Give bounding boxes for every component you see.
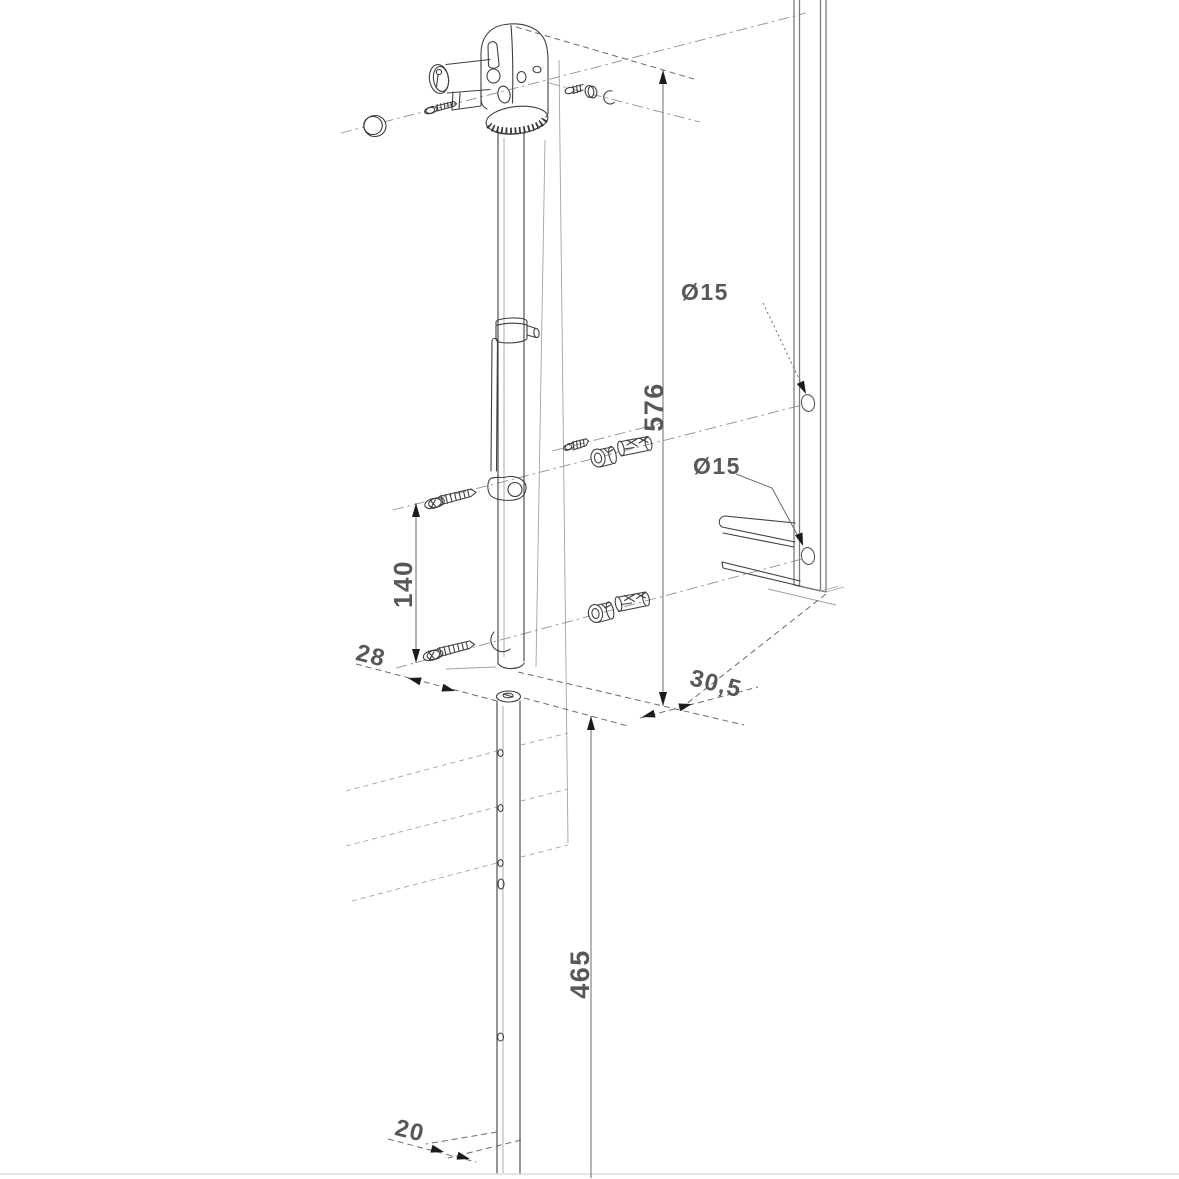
dim-28-label: 28 — [353, 639, 388, 672]
dim-576-label: 576 — [639, 382, 669, 432]
wall-anchor-set-upper — [589, 436, 653, 468]
dim-dia15-upper-label: Ø15 — [681, 279, 729, 305]
bolt-rod — [488, 131, 540, 669]
head-side-screw-set — [564, 85, 614, 104]
post-hole-lower — [800, 547, 816, 566]
mounting-screw-lower — [422, 641, 474, 662]
euro-keyway-slot — [488, 42, 499, 69]
dim-dia15-lower-label: Ø15 — [693, 453, 741, 479]
post-hole-upper — [800, 394, 816, 413]
guide-tube — [497, 691, 521, 1173]
mounting-screw-upper — [424, 489, 476, 510]
dim-140-label: 140 — [388, 560, 418, 608]
technical-drawing-page: 576 465 140 28 30,5 20 Ø15 — [0, 0, 1179, 1179]
lock-head — [481, 24, 549, 137]
keeper-bracket — [719, 516, 836, 605]
dim-465-label: 465 — [565, 949, 595, 999]
wall-post — [794, 0, 844, 592]
handle-grip — [488, 476, 526, 500]
cover-cap — [364, 116, 386, 137]
dimension-annotations: 576 465 140 28 30,5 20 Ø15 — [353, 27, 826, 1178]
dim-30-5-label: 30,5 — [687, 665, 745, 704]
handle-clamp — [496, 318, 527, 343]
handle-lever — [491, 338, 498, 471]
dim-20-label: 20 — [392, 1114, 427, 1147]
wall-anchor-set-lower — [587, 591, 651, 623]
installation-drawing: 576 465 140 28 30,5 20 Ø15 — [0, 0, 1179, 1179]
